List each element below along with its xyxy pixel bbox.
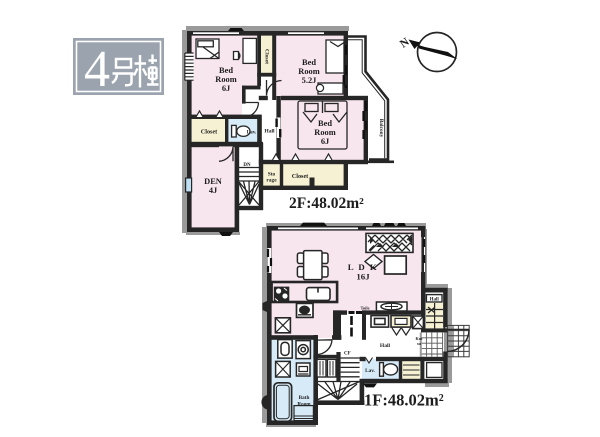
svg-text:DEN: DEN (204, 177, 222, 186)
svg-text:1F:48.02m²: 1F:48.02m² (364, 391, 444, 410)
svg-text:16J: 16J (356, 272, 370, 282)
svg-text:6J: 6J (222, 84, 230, 93)
svg-text:Hall: Hall (430, 298, 440, 303)
svg-text:L D K: L D K (348, 262, 378, 272)
svg-text:Room: Room (298, 67, 319, 76)
svg-text:6J: 6J (321, 137, 329, 146)
svg-text:Room: Room (314, 128, 335, 137)
svg-text:Toile: Toile (360, 306, 369, 311)
svg-text:Lav.: Lav. (365, 368, 375, 374)
svg-text:Lav.: Lav. (247, 130, 257, 136)
svg-text:Hall: Hall (264, 129, 275, 135)
svg-text:Bath: Bath (299, 395, 310, 401)
svg-text:DN: DN (243, 163, 251, 168)
svg-text:Room: Room (215, 75, 236, 84)
svg-text:Closet: Closet (201, 129, 218, 136)
svg-text:Balcony: Balcony (378, 119, 384, 138)
svg-text:CF: CF (344, 352, 351, 357)
svg-text:Closet: Closet (264, 49, 270, 64)
svg-text:Bed: Bed (219, 66, 233, 75)
svg-text:rage: rage (266, 178, 277, 184)
svg-text:su: su (417, 341, 422, 346)
svg-text:Hall: Hall (380, 343, 391, 349)
svg-text:Room: Room (297, 401, 311, 407)
svg-text:5.2J: 5.2J (302, 76, 317, 85)
svg-text:4: 4 (84, 41, 110, 98)
svg-text:Bed: Bed (318, 119, 332, 128)
svg-text:4J: 4J (209, 186, 217, 195)
svg-text:Bed: Bed (302, 58, 316, 67)
svg-text:2F:48.02m²: 2F:48.02m² (289, 195, 364, 212)
svg-text:Closet: Closet (292, 173, 309, 180)
